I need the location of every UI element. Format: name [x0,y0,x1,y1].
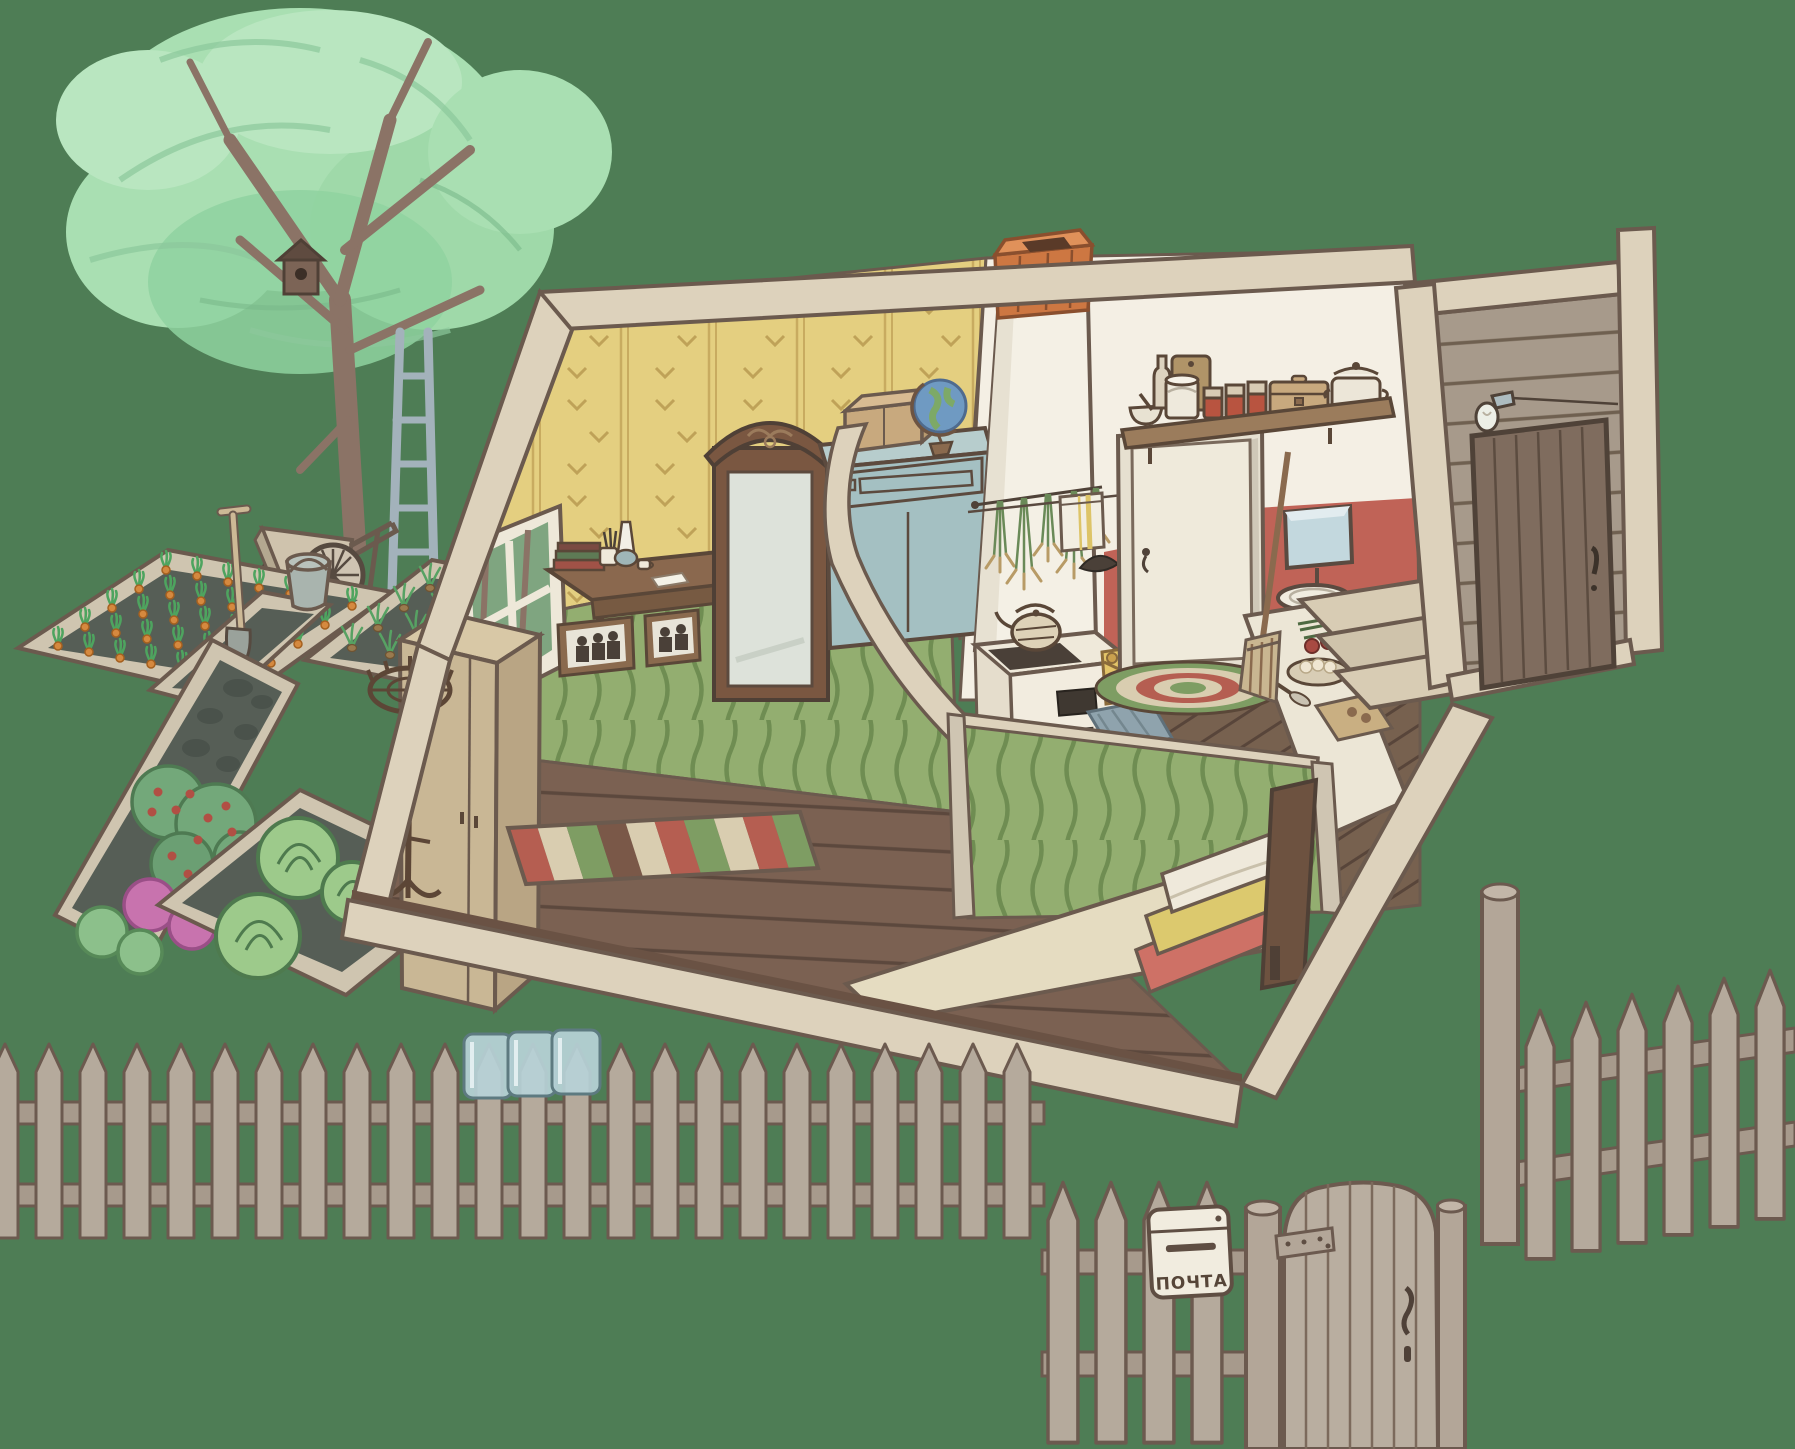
teacup[interactable] [638,560,653,569]
gate-post-right [1438,1200,1466,1449]
mailbox-label: ПОЧТА [1155,1271,1228,1295]
books[interactable] [554,543,604,570]
house-cutaway [342,228,1662,1126]
towel[interactable] [1060,493,1104,551]
interior-door[interactable] [1118,426,1264,676]
fence-right-segment [1482,884,1795,1259]
glass-jars[interactable] [464,1030,600,1098]
bucket[interactable] [287,554,330,610]
scene-canvas: ПОЧТА [0,0,1795,1449]
mail-box[interactable]: ПОЧТА [1148,1206,1232,1298]
milk-can[interactable] [1166,375,1198,418]
porch-corner-strip [1618,228,1662,654]
mirror-wardrobe[interactable] [706,423,834,700]
entry-door[interactable] [1472,420,1614,688]
fence-middle-segment: ПОЧТА [1042,1181,1465,1449]
illustration-stage: ПОЧТА [0,0,1795,1449]
gate[interactable] [1276,1181,1438,1449]
fence-left-segment [0,1030,1044,1238]
porch [1396,228,1662,700]
tall-post [1482,884,1518,1244]
